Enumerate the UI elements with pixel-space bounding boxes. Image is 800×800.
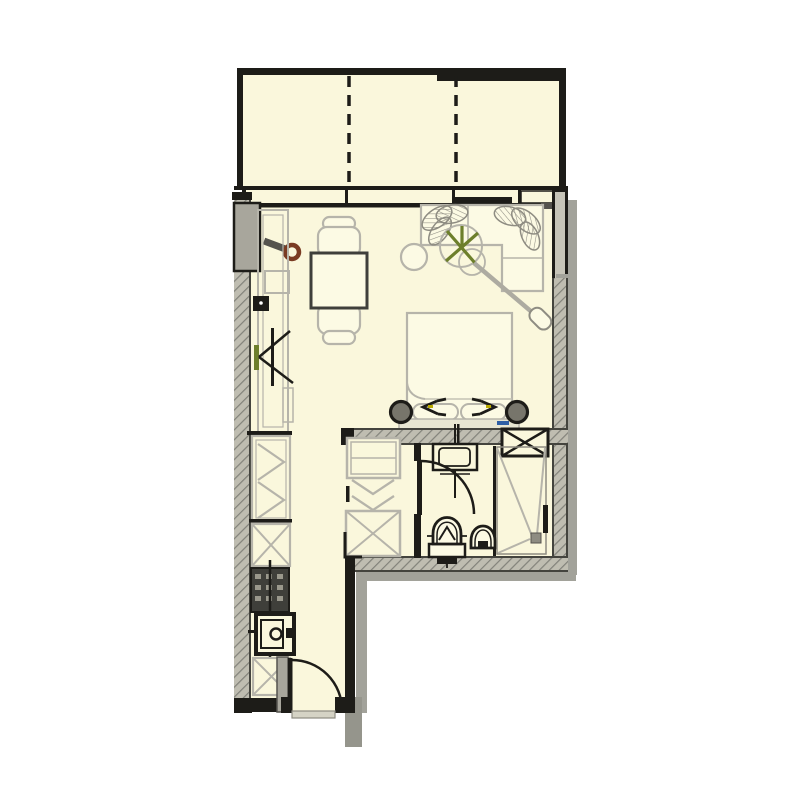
entrance-threshold [292, 711, 335, 718]
outlet-dot [259, 301, 263, 305]
floor-plan [0, 0, 800, 800]
closet-wall-tick [346, 486, 350, 502]
bedside-sconce-left [391, 402, 412, 423]
left-wall-top-cap [232, 192, 252, 200]
right-wall-hatch [552, 278, 568, 572]
toilet-base [437, 556, 457, 564]
window-mullion-2 [345, 186, 348, 207]
shower-drain [531, 533, 541, 543]
kitchen-wall-tick [249, 519, 292, 523]
kitchen-sink-tick [248, 630, 256, 633]
entrance-jamb-right [335, 697, 346, 713]
left-wall-hatch [234, 196, 250, 713]
sconce-accent-left [428, 405, 433, 408]
window-band-top-line [234, 186, 568, 190]
right-wall-top-cap [552, 186, 568, 192]
balcony [237, 68, 566, 190]
entrance-wall-left [234, 698, 281, 712]
left-wall-inner-edge [249, 196, 251, 713]
entrance-floor-gap [292, 698, 335, 712]
right-wall-inner-edge [552, 278, 554, 572]
hallway-right-wall [345, 558, 355, 713]
side-window-inner-line [552, 190, 555, 278]
wall-tv-post [271, 328, 274, 386]
shadow-right-wall [568, 200, 577, 575]
bidet-base [478, 541, 488, 548]
side-window-outer-line [565, 190, 568, 278]
shower-handle [543, 505, 548, 533]
kitchen-strip [247, 431, 295, 695]
bedside-sconce-right [507, 402, 528, 423]
double-bed [391, 313, 528, 432]
sconce-accent-right [486, 405, 491, 408]
balcony-wall-right [559, 68, 566, 190]
balcony-wall-left [237, 68, 243, 190]
toilet-tank [429, 544, 465, 557]
blue-marker [497, 421, 509, 425]
right-wall-outer-edge [566, 278, 568, 572]
bathroom-bottom-wall-edge-b [345, 570, 568, 572]
shadow-hall-wall [356, 578, 367, 713]
round-side-table [401, 244, 427, 270]
dining-chair-bottom-back [323, 331, 355, 344]
entrance-jamb-left [281, 697, 292, 713]
window-band-glass [242, 190, 560, 204]
dining-table [311, 253, 367, 308]
balcony-floor [242, 74, 560, 188]
floor-plan-drawing [0, 0, 800, 800]
kitchen-faucet [286, 628, 295, 638]
bathroom-door-leaf [417, 460, 422, 515]
bathroom-left-wall-lower [414, 514, 421, 558]
counter-end-wall-tick [247, 431, 292, 435]
bathroom-left-wall-upper [414, 443, 421, 461]
wall-tv-screen [254, 345, 259, 370]
dining-set [311, 217, 367, 344]
ac-shaft-box [234, 203, 260, 271]
balcony-wall-top-thick [458, 68, 566, 81]
sliding-glass-door-leaf [455, 197, 512, 204]
